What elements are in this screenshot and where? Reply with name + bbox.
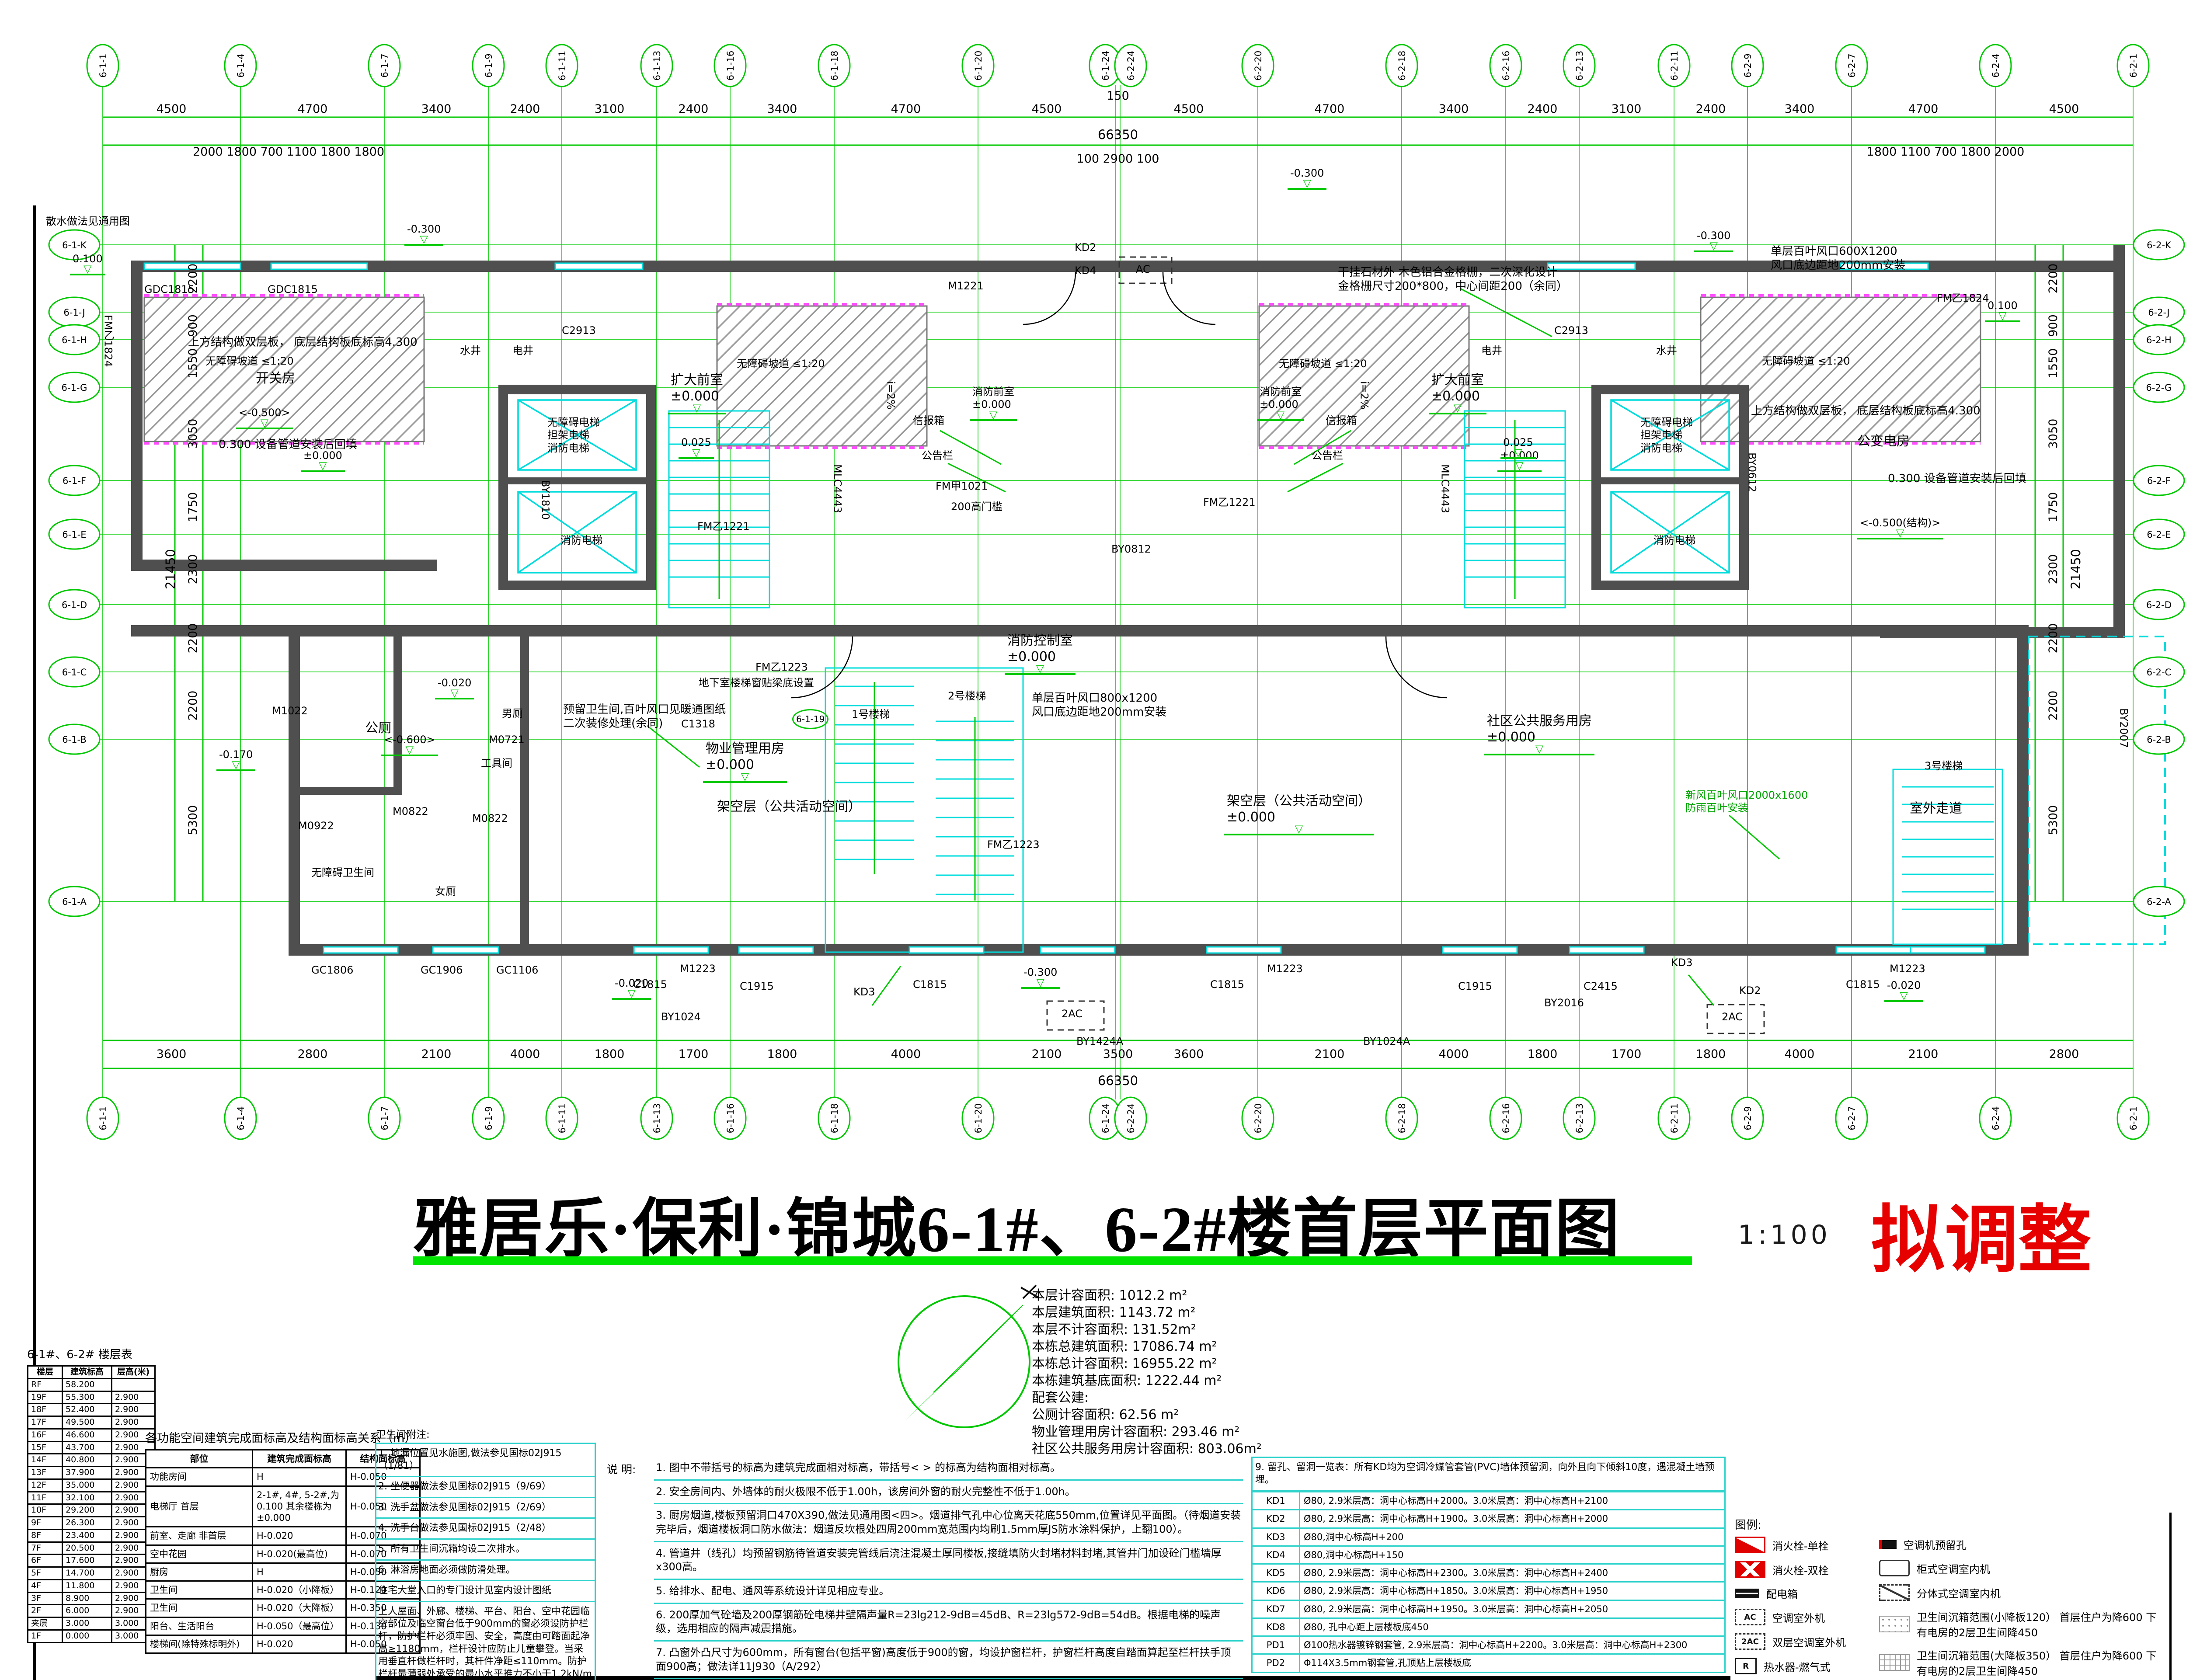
svg-text:6-1-D: 6-1-D bbox=[62, 600, 87, 610]
floor-table-row: 4F 11.800 2.900 bbox=[28, 1579, 155, 1592]
floor-table-row: 17F 49.500 2.900 bbox=[28, 1416, 155, 1429]
plan-label: 公告栏 bbox=[922, 449, 953, 462]
floor-level: RF bbox=[28, 1378, 63, 1391]
plan-label: 无障碍坡道 ≤1:20 bbox=[1762, 355, 1850, 368]
svg-text:6-1-G: 6-1-G bbox=[62, 383, 87, 393]
svg-text:2400: 2400 bbox=[1696, 102, 1726, 116]
toilet-note-item: 6. 淋浴房地面必须做防滑处理。 bbox=[375, 1561, 596, 1582]
legend-label: 热水器-燃气式 bbox=[1764, 1659, 1831, 1674]
legend-item: 2AC 双层空调室外机 bbox=[1735, 1633, 1866, 1650]
plan-label: 女厕 bbox=[435, 885, 456, 898]
plan-label: BY2007 bbox=[2117, 708, 2130, 748]
floor-level: 8F bbox=[28, 1529, 63, 1542]
area-statistic-line: 物业管理用房计容面积: 293.46 m² bbox=[1032, 1424, 1262, 1440]
svg-text:6-2-G: 6-2-G bbox=[2146, 383, 2172, 393]
svg-text:3050: 3050 bbox=[186, 419, 200, 449]
plan-label: 2AC bbox=[1062, 1008, 1083, 1020]
floor-elevation: 11.800 bbox=[63, 1579, 112, 1592]
svg-text:4700: 4700 bbox=[891, 102, 921, 116]
plan-label: BY0612 bbox=[1745, 452, 1758, 492]
plan-label: 消防电梯 bbox=[1653, 534, 1695, 547]
opening-schedule-row: KD2 Ø80, 2.9米层高：洞中心标高H+1900。3.0米层高：洞中心标高… bbox=[1252, 1510, 1725, 1528]
floor-height bbox=[112, 1378, 155, 1391]
floor-elevation: 14.700 bbox=[63, 1567, 112, 1580]
floor-level: 1F bbox=[28, 1630, 63, 1642]
opening-schedule-row: KD5 Ø80, 2.9米层高：洞中心标高H+2300。3.0米层高：洞中心标高… bbox=[1252, 1564, 1725, 1582]
plan-label: 无障碍电梯 担架电梯 消防电梯 bbox=[547, 416, 600, 455]
plan-label: 信报箱 bbox=[913, 414, 944, 427]
plan-label: 单层百叶风口600X1200 风口底边距地200mm安装 bbox=[1771, 245, 1905, 272]
area-statistics: 本层计容面积: 1012.2 m²本层建筑面积: 1143.72 m²本层不计容… bbox=[1032, 1287, 1262, 1458]
svg-text:100 2900 100: 100 2900 100 bbox=[1077, 152, 1159, 166]
plan-label: BY1424A bbox=[1076, 1035, 1123, 1048]
plan-label: 电井 bbox=[1481, 344, 1502, 357]
general-notes-label: 说 明: bbox=[607, 1461, 636, 1477]
opening-code: KD5 bbox=[1252, 1564, 1300, 1582]
floor-elevation: 46.600 bbox=[63, 1429, 112, 1441]
svg-text:2100: 2100 bbox=[421, 1047, 452, 1061]
svg-text:6-2-18: 6-2-18 bbox=[1397, 51, 1407, 81]
svg-text:1800 1100 700 1800 2000: 1800 1100 700 1800 2000 bbox=[1867, 145, 2025, 159]
opening-schedule: 9. 留孔、留洞一览表：所有KD均为空调冷媒管套管(PVC)墙体预留洞，向外且向… bbox=[1251, 1457, 1726, 1673]
plan-label: M0822 bbox=[472, 812, 508, 825]
plan-label: 无障碍电梯 担架电梯 消防电梯 bbox=[1640, 416, 1693, 455]
svg-text:6-1-18: 6-1-18 bbox=[829, 1103, 840, 1134]
svg-text:2000 1800 700 1100 1800 1800: 2000 1800 700 1100 1800 1800 bbox=[193, 145, 384, 159]
svg-text:3050: 3050 bbox=[2047, 419, 2060, 449]
floor-level: 5F bbox=[28, 1567, 63, 1580]
general-note-item: 7. 凸窗外凸尺寸为600mm，所有窗台(包括平窗)高度低于900的窗，均设护窗… bbox=[654, 1642, 1243, 1679]
legend-item: 配电箱 bbox=[1735, 1586, 1866, 1601]
finish-arch-level: 2-1#, 4#, 5-2#,为0.100 其余楼栋为±0.000 bbox=[253, 1486, 346, 1527]
plan-label: 单层百叶风口800x1200 风口底边距地200mm安装 bbox=[1032, 692, 1166, 719]
svg-text:6-1-20: 6-1-20 bbox=[973, 1103, 984, 1134]
svg-text:2200: 2200 bbox=[2047, 691, 2060, 721]
svg-text:6-1-13: 6-1-13 bbox=[652, 1103, 662, 1134]
plan-label: 公厕 bbox=[365, 720, 391, 737]
level-marker: 消防控制室 ±0.000 bbox=[1005, 633, 1076, 675]
plan-label: FM乙1223 bbox=[755, 661, 808, 674]
svg-text:6-1-24: 6-1-24 bbox=[1100, 51, 1111, 81]
level-marker: 0.100 bbox=[70, 253, 105, 275]
level-marker: <-0.600> bbox=[381, 734, 438, 756]
svg-text:6-2-11: 6-2-11 bbox=[1669, 51, 1680, 81]
plan-label: 无障碍坡道 ≤1:20 bbox=[737, 358, 825, 370]
floor-level: 17F bbox=[28, 1416, 63, 1429]
svg-text:6-2-K: 6-2-K bbox=[2147, 240, 2172, 250]
svg-text:2300: 2300 bbox=[186, 554, 200, 584]
plan-label: 上方结构做双层板， 底层结构板底标高4.300 bbox=[188, 336, 424, 350]
general-note-item: 3. 厨房烟道,楼板预留洞口470X390,做法见通用图<四>。烟道排气孔中心位… bbox=[654, 1504, 1243, 1542]
floor-elevation: 29.200 bbox=[63, 1504, 112, 1517]
legend-label: 双层空调室外机 bbox=[1772, 1634, 1846, 1649]
svg-text:3100: 3100 bbox=[1612, 102, 1642, 116]
svg-text:3400: 3400 bbox=[1439, 102, 1469, 116]
finish-location: 前室、走廊 非首层 bbox=[146, 1527, 253, 1545]
plan-label: KD2 bbox=[1075, 241, 1096, 254]
plan-label: 开关房 bbox=[256, 371, 295, 387]
plan-label: BY0812 bbox=[1111, 543, 1151, 556]
floor-level: 3F bbox=[28, 1592, 63, 1605]
floor-table-row: 12F 35.000 2.900 bbox=[28, 1479, 155, 1492]
general-note-item: 4. 管道井（线孔）均预留钢筋待管道安装完管线后浇注混凝土厚同楼板,接缝填防火封… bbox=[654, 1542, 1243, 1580]
floor-table-row: RF 58.200 bbox=[28, 1378, 155, 1391]
opening-schedule-row: KD3 Ø80,洞中心标高H+200 bbox=[1252, 1528, 1725, 1546]
svg-text:2800: 2800 bbox=[298, 1047, 328, 1061]
finish-arch-level: H bbox=[253, 1468, 346, 1486]
area-statistic-line: 公厕计容面积: 62.56 m² bbox=[1032, 1407, 1262, 1423]
svg-text:6-2-C: 6-2-C bbox=[2147, 667, 2172, 678]
finish-table-header: 部位 bbox=[146, 1450, 253, 1468]
opening-description: Ø80,洞中心标高H+200 bbox=[1300, 1528, 1725, 1546]
plan-label: BY1810 bbox=[539, 480, 551, 520]
level-marker: -0.020 bbox=[1884, 979, 1923, 1002]
opening-schedule-row: KD6 Ø80, 2.9米层高：洞中心标高H+1850。3.0米层高：洞中心标高… bbox=[1252, 1582, 1725, 1600]
svg-text:1800: 1800 bbox=[595, 1047, 625, 1061]
level-marker: -0.020 bbox=[435, 677, 474, 699]
legend-item: 空调机预留孔 bbox=[1879, 1537, 2163, 1552]
floor-table-row: 10F 29.200 2.900 bbox=[28, 1504, 155, 1517]
floor-elevation: 20.500 bbox=[63, 1542, 112, 1555]
toilet-note-item: 3. 洗手盆做法参见国标02J915（2/69） bbox=[375, 1498, 596, 1519]
svg-text:1800: 1800 bbox=[767, 1047, 797, 1061]
svg-text:2400: 2400 bbox=[510, 102, 540, 116]
opening-description: Ø80, 2.9米层高：洞中心标高H+1850。3.0米层高：洞中心标高H+19… bbox=[1300, 1582, 1725, 1600]
plan-label: KD4 bbox=[1075, 264, 1096, 277]
svg-text:6-1-16: 6-1-16 bbox=[725, 1103, 736, 1134]
toilet-note-item: 2. 坐便器做法参见国标02J915（9/69） bbox=[375, 1477, 596, 1498]
finish-location: 空中花园 bbox=[146, 1545, 253, 1563]
opening-code: KD2 bbox=[1252, 1510, 1300, 1528]
legend-label: 配电箱 bbox=[1766, 1586, 1798, 1601]
plan-label: M0922 bbox=[298, 820, 334, 832]
plan-label: 3号楼梯 bbox=[1925, 760, 1963, 772]
plan-label: 水井 bbox=[460, 344, 481, 357]
svg-text:6-2-16: 6-2-16 bbox=[1501, 51, 1511, 81]
svg-text:6-2-11: 6-2-11 bbox=[1669, 1103, 1680, 1134]
svg-text:2200: 2200 bbox=[2047, 264, 2060, 294]
general-notes: 说 明: 1. 图中不带括号的标高为建筑完成面相对标高，带括号< > 的标高为结… bbox=[607, 1457, 1243, 1680]
opening-schedule-row: KD7 Ø80, 2.9米层高：洞中心标高H+1950。3.0米层高：洞中心标高… bbox=[1252, 1600, 1725, 1618]
floor-elevation: 55.300 bbox=[63, 1391, 112, 1404]
svg-text:6-2-E: 6-2-E bbox=[2147, 529, 2171, 540]
floor-elevation: 17.600 bbox=[63, 1555, 112, 1567]
legend-item: 分体式空调室内机 bbox=[1879, 1584, 2163, 1601]
level-marker: -0.300 bbox=[1288, 167, 1326, 190]
floor-table-row: 2F 6.000 2.900 bbox=[28, 1605, 155, 1617]
svg-text:6-1-4: 6-1-4 bbox=[236, 1106, 246, 1130]
floor-level: 18F bbox=[28, 1404, 63, 1416]
plan-label: MLC4443 bbox=[831, 464, 843, 513]
area-statistic-line: 本层计容面积: 1012.2 m² bbox=[1032, 1287, 1262, 1304]
opening-code: KD6 bbox=[1252, 1582, 1300, 1600]
floor-level: 9F bbox=[28, 1517, 63, 1530]
svg-text:6-1-C: 6-1-C bbox=[62, 667, 87, 678]
svg-text:6-1-7: 6-1-7 bbox=[379, 1106, 390, 1130]
legend-item: 柜式空调室内机 bbox=[1879, 1560, 2163, 1576]
floor-level: 7F bbox=[28, 1542, 63, 1555]
plan-label: C1815 bbox=[633, 978, 667, 991]
floor-level: 10F bbox=[28, 1504, 63, 1517]
plan-label: 1号楼梯 bbox=[852, 708, 890, 721]
distribution-box-icon bbox=[1735, 1589, 1759, 1598]
area-statistic-line: 本栋建筑基底面积: 1222.44 m² bbox=[1032, 1373, 1262, 1389]
floor-height: 2.900 bbox=[112, 1391, 155, 1404]
legend: 图例: 消火栓-单栓 消火栓-双栓 配电箱 AC 空调室外机 bbox=[1735, 1516, 2170, 1680]
plan-label: KD2 bbox=[1739, 984, 1761, 997]
opening-schedule-row: PD2 Φ114X3.5mm钢套管,孔顶贴上层楼板底 bbox=[1252, 1654, 1725, 1672]
axis-bubbles bbox=[49, 45, 2184, 1139]
plan-label: M1221 bbox=[948, 280, 984, 292]
general-note-item: 6. 200厚加气砼墙及200厚钢筋砼电梯井壁隔声量R=23lg212-9dB=… bbox=[654, 1604, 1243, 1642]
plan-label: C1815 bbox=[1846, 978, 1880, 991]
plan-label: M1223 bbox=[1267, 963, 1303, 975]
svg-text:6-1-1: 6-1-1 bbox=[98, 1106, 108, 1130]
opening-description: Ø80, 2.9米层高：洞中心标高H+2000。3.0米层高：洞中心标高H+21… bbox=[1300, 1492, 1725, 1510]
svg-text:6-2-B: 6-2-B bbox=[2147, 734, 2171, 745]
plan-label: 散水做法见通用图 bbox=[46, 215, 130, 228]
legend-label: 卫生间沉箱范围(小降板120） 首层住户为降600 下有电房的2层卫生间降450 bbox=[1917, 1609, 2163, 1639]
plan-label: 地下室楼梯窗贴梁底设置 bbox=[699, 677, 814, 689]
floor-table-row: 18F 52.400 2.900 bbox=[28, 1404, 155, 1416]
svg-text:6-2-D: 6-2-D bbox=[2146, 600, 2172, 610]
svg-text:66350: 66350 bbox=[1098, 127, 1138, 142]
svg-text:6-2-J: 6-2-J bbox=[2148, 307, 2169, 318]
finish-arch-level: H-0.020 bbox=[253, 1527, 346, 1545]
svg-text:2100: 2100 bbox=[1032, 1047, 1062, 1061]
plan-label: 无障碍卫生间 bbox=[311, 866, 374, 879]
svg-text:6-2-13: 6-2-13 bbox=[1574, 1103, 1585, 1134]
plan-label: 干挂石材外 木色铝合金格栅，二次深化设计 金格栅尺寸200*800，中心间距20… bbox=[1338, 266, 1568, 293]
title-underline bbox=[413, 1256, 1692, 1265]
plan-label: 无障碍坡道 ≤1:20 bbox=[205, 355, 294, 368]
legend-label: 空调室外机 bbox=[1772, 1610, 1825, 1625]
floor-table-row: 15F 43.700 2.900 bbox=[28, 1441, 155, 1454]
plan-label: 0.300 设备管道安装后回填 bbox=[1888, 472, 2026, 486]
svg-text:3400: 3400 bbox=[1785, 102, 1815, 116]
drawing-sheet: 6-1-1 6-1-4 6-1-7 6-1-9 6-1-11 6-1-13 6-… bbox=[0, 0, 2186, 1680]
opening-code: KD8 bbox=[1252, 1618, 1300, 1636]
plan-label: C1915 bbox=[740, 980, 774, 993]
plan-label: M1223 bbox=[1890, 963, 1925, 975]
plan-label: C1915 bbox=[1458, 980, 1492, 993]
legend-item: AC 空调室外机 bbox=[1735, 1609, 1866, 1625]
floor-elevation: 49.500 bbox=[63, 1416, 112, 1429]
svg-text:900: 900 bbox=[2047, 314, 2060, 337]
svg-text:6-2-1: 6-2-1 bbox=[2128, 1106, 2139, 1130]
finish-arch-level: H-0.020（小降板） bbox=[253, 1581, 346, 1599]
plan-label: FM乙1824 bbox=[1937, 292, 1989, 305]
stairs bbox=[669, 411, 2002, 952]
general-note-item: 5. 给排水、配电、通风等系统设计详见相应专业。 bbox=[654, 1580, 1243, 1604]
legend-label: 消火栓-单栓 bbox=[1772, 1537, 1829, 1553]
svg-text:1750: 1750 bbox=[186, 492, 200, 522]
area-statistic-line: 社区公共服务用房计容面积: 803.06m² bbox=[1032, 1441, 1262, 1457]
plan-label: BY2016 bbox=[1544, 997, 1584, 1009]
plan-label: C2913 bbox=[562, 324, 596, 337]
sunken-slab-small-icon bbox=[1879, 1616, 1910, 1632]
general-note-item: 1. 图中不带括号的标高为建筑完成面相对标高，带括号< > 的标高为结构面相对标… bbox=[654, 1457, 1243, 1481]
split-ac-indoor-icon bbox=[1879, 1584, 1910, 1601]
svg-text:2100: 2100 bbox=[1908, 1047, 1939, 1061]
svg-text:6-2-7: 6-2-7 bbox=[1847, 53, 1857, 77]
plan-label: M0822 bbox=[393, 805, 428, 818]
toilet-note-item: 5. 所有卫生间沉箱均设二次排水。 bbox=[375, 1540, 596, 1561]
toilet-note-item: 1. 地漏位置见水施图,做法参见国标02J915（1/81） bbox=[375, 1444, 596, 1477]
legend-label: 消火栓-双栓 bbox=[1772, 1562, 1829, 1577]
floor-level: 14F bbox=[28, 1454, 63, 1467]
plan-label: 公告栏 bbox=[1312, 449, 1343, 462]
level-marker: 扩大前室 ±0.000 bbox=[1429, 372, 1486, 414]
plan-label: FM乙1223 bbox=[987, 838, 1040, 851]
svg-text:6-1-20: 6-1-20 bbox=[973, 51, 984, 81]
plan-label: 电井 bbox=[512, 344, 533, 357]
finish-location: 厨房 bbox=[146, 1563, 253, 1581]
svg-text:2800: 2800 bbox=[2049, 1047, 2079, 1061]
level-marker: 0.100 bbox=[1985, 299, 2020, 322]
svg-text:4500: 4500 bbox=[157, 102, 187, 116]
plan-label: GDC1815 bbox=[144, 283, 195, 296]
floor-level: 4F bbox=[28, 1579, 63, 1592]
opening-code: PD2 bbox=[1252, 1654, 1300, 1672]
area-statistic-line: 配套公建: bbox=[1032, 1390, 1262, 1406]
floor-height: 2.900 bbox=[112, 1416, 155, 1429]
svg-text:2400: 2400 bbox=[1528, 102, 1558, 116]
floor-elevation: 37.900 bbox=[63, 1467, 112, 1479]
plan-label: C1815 bbox=[913, 978, 947, 991]
floor-table-row: 3F 8.900 2.900 bbox=[28, 1592, 155, 1605]
finish-location: 功能房间 bbox=[146, 1468, 253, 1486]
svg-text:2100: 2100 bbox=[1315, 1047, 1345, 1061]
floor-elevation: 32.100 bbox=[63, 1492, 112, 1504]
svg-text:6-2-20: 6-2-20 bbox=[1253, 1103, 1264, 1134]
floor-elevation: 58.200 bbox=[63, 1378, 112, 1391]
svg-text:2200: 2200 bbox=[186, 623, 200, 654]
plan-label: 室外走道 bbox=[1910, 801, 1962, 817]
toilet-note-item: 上人屋面、外廊、楼梯、平台、阳台、空中花园临空部位及临空窗台低于900mm的窗必… bbox=[375, 1602, 596, 1680]
legend-label: 柜式空调室内机 bbox=[1917, 1561, 1990, 1576]
finish-location: 卫生间 bbox=[146, 1599, 253, 1617]
opening-description: Ø80,洞中心标高H+150 bbox=[1300, 1546, 1725, 1564]
floor-table-row: 11F 32.100 2.900 bbox=[28, 1492, 155, 1504]
plan-label: BY1024A bbox=[1363, 1035, 1410, 1048]
level-marker: -0.300 bbox=[404, 223, 443, 246]
opening-description: Φ114X3.5mm钢套管,孔顶贴上层楼板底 bbox=[1300, 1654, 1725, 1672]
floor-level: 11F bbox=[28, 1492, 63, 1504]
opening-description: Ø100热水器镀锌钢套管, 2.9米层高：洞中心标高H+2200。3.0米层高：… bbox=[1300, 1636, 1725, 1654]
opening-code: KD3 bbox=[1252, 1528, 1300, 1546]
svg-text:6-2-1: 6-2-1 bbox=[2128, 53, 2139, 77]
svg-text:6-1-A: 6-1-A bbox=[62, 897, 87, 907]
svg-text:4000: 4000 bbox=[1785, 1047, 1815, 1061]
svg-text:2200: 2200 bbox=[186, 691, 200, 721]
plan-label: AC bbox=[1136, 263, 1150, 276]
level-marker: 消防前室 ±0.000 bbox=[970, 386, 1017, 421]
plan-label: 信报箱 bbox=[1326, 414, 1357, 427]
plan-label: FM乙1221 bbox=[1203, 496, 1256, 509]
svg-text:6-2-9: 6-2-9 bbox=[1743, 1106, 1753, 1130]
north-compass bbox=[892, 1281, 1049, 1438]
floor-level: 12F bbox=[28, 1479, 63, 1492]
level-marker: 社区公共服务用房 ±0.000 bbox=[1484, 713, 1594, 755]
svg-text:3500: 3500 bbox=[1103, 1047, 1133, 1061]
legend-item: 消火栓-双栓 bbox=[1735, 1561, 1866, 1578]
svg-text:3400: 3400 bbox=[421, 102, 452, 116]
ac-reserved-hole-icon bbox=[1879, 1540, 1897, 1549]
legend-label: 卫生间沉箱范围(大降板350） 首层住户为降600 下有电房的2层卫生间降450 bbox=[1917, 1647, 2163, 1678]
opening-description: Ø80, 2.9米层高：洞中心标高H+1900。3.0米层高：洞中心标高H+20… bbox=[1300, 1510, 1725, 1528]
plan-label: GC1906 bbox=[421, 964, 463, 977]
floor-elevation: 23.400 bbox=[63, 1529, 112, 1542]
floor-table-row: 1F 0.000 3.000 bbox=[28, 1630, 155, 1642]
opening-schedule-row: PD1 Ø100热水器镀锌钢套管, 2.9米层高：洞中心标高H+2200。3.0… bbox=[1252, 1636, 1725, 1654]
svg-text:21450: 21450 bbox=[163, 549, 178, 589]
area-statistic-line: 本层不计容面积: 131.52m² bbox=[1032, 1322, 1262, 1338]
general-note-item: 2. 安全房间内、外墙体的耐火极限不低于1.00h，该房间外窗的耐火完整性不低于… bbox=[654, 1481, 1243, 1505]
toilet-notes: 卫生间附注: 1. 地漏位置见水施图,做法参见国标02J915（1/81）2. … bbox=[375, 1424, 596, 1680]
svg-text:4500: 4500 bbox=[2049, 102, 2079, 116]
level-marker: 架空层（公共活动空间） ±0.000 bbox=[1224, 793, 1374, 835]
plan-label: 无障碍坡道 ≤1:20 bbox=[1279, 358, 1367, 370]
opening-description: Ø80, 孔中心距上层楼板底450 bbox=[1300, 1618, 1725, 1636]
floor-elevation: 40.800 bbox=[63, 1454, 112, 1467]
scale-label: 1:100 bbox=[1738, 1220, 1831, 1250]
plan-label: 架空层（公共活动空间） bbox=[717, 799, 861, 815]
plan-label: GDC1815 bbox=[268, 283, 318, 296]
finish-arch-level: H-0.050（最高位） bbox=[253, 1617, 346, 1635]
floor-table-row: 夹层 3.000 3.000 bbox=[28, 1617, 155, 1630]
opening-description: Ø80, 2.9米层高：洞中心标高H+1950。3.0米层高：洞中心标高H+20… bbox=[1300, 1600, 1725, 1618]
finish-location: 阳台、生活阳台 bbox=[146, 1617, 253, 1635]
svg-text:21450: 21450 bbox=[2068, 549, 2083, 589]
floor-elevation: 52.400 bbox=[63, 1404, 112, 1416]
svg-text:4700: 4700 bbox=[1908, 102, 1939, 116]
svg-text:5300: 5300 bbox=[186, 805, 200, 835]
level-marker: <-0.500(结构)> bbox=[1857, 517, 1943, 539]
floor-level: 6F bbox=[28, 1555, 63, 1567]
opening-description: Ø80, 2.9米层高：洞中心标高H+2300。3.0米层高：洞中心标高H+24… bbox=[1300, 1564, 1725, 1582]
plan-label: C1815 bbox=[1210, 978, 1244, 991]
svg-text:6-2-13: 6-2-13 bbox=[1574, 51, 1585, 81]
legend-title: 图例: bbox=[1735, 1516, 2170, 1532]
axis-bubble-labels: 6-1-1 6-1-4 6-1-7 6-1-9 6-1-11 6-1-13 6-… bbox=[62, 51, 2172, 1134]
floor-table: 6-1#、6-2# 楼层表 楼层 建筑标高 层高(米) RF 58.200 bbox=[27, 1346, 156, 1643]
toilet-note-item: 住宅大堂入口的专门设计见室内设计图纸 bbox=[375, 1581, 596, 1602]
floor-table-row: 14F 40.800 2.900 bbox=[28, 1454, 155, 1467]
floor-level: 2F bbox=[28, 1605, 63, 1617]
level-marker: -0.300 bbox=[1021, 966, 1060, 989]
svg-text:6-1-7: 6-1-7 bbox=[379, 53, 390, 77]
finish-location: 楼梯间(除特殊标明外) bbox=[146, 1635, 253, 1653]
floor-table-row: 13F 37.900 2.900 bbox=[28, 1467, 155, 1479]
legend-label: 空调机预留孔 bbox=[1904, 1537, 1967, 1552]
plan-label: 工具间 bbox=[481, 757, 512, 770]
plan-label: i=2% bbox=[1358, 381, 1370, 410]
plan-label: 2号楼梯 bbox=[948, 690, 986, 703]
accessible-ramps bbox=[144, 297, 1981, 446]
level-marker: -0.170 bbox=[216, 748, 255, 771]
plan-label: 男厕 bbox=[502, 707, 523, 720]
svg-text:4000: 4000 bbox=[510, 1047, 540, 1061]
floor-table-row: 7F 20.500 2.900 bbox=[28, 1542, 155, 1555]
floor-elevation: 8.900 bbox=[63, 1592, 112, 1605]
plan-label: BY1024 bbox=[661, 1011, 701, 1023]
svg-text:3600: 3600 bbox=[157, 1047, 187, 1061]
svg-text:6-2-F: 6-2-F bbox=[2147, 476, 2171, 486]
finish-table-header: 建筑完成面标高 bbox=[253, 1450, 346, 1468]
plan-label: 200高门槛 bbox=[951, 501, 1002, 513]
svg-text:4000: 4000 bbox=[1439, 1047, 1469, 1061]
